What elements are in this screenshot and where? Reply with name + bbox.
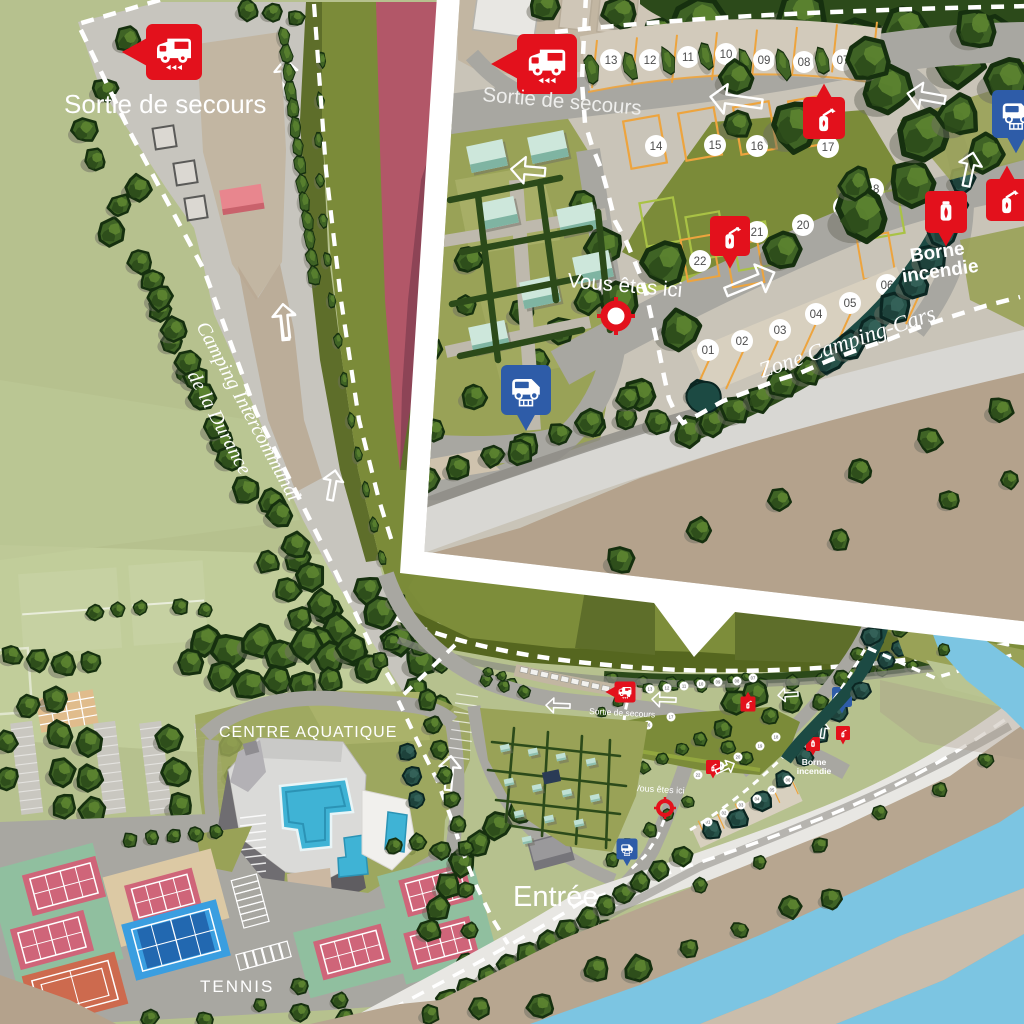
svg-text:06: 06	[786, 778, 791, 783]
svg-text:07: 07	[751, 676, 756, 681]
svg-text:05: 05	[770, 788, 775, 793]
svg-text:13: 13	[648, 687, 653, 692]
svg-text:17: 17	[822, 142, 835, 154]
svg-text:03: 03	[774, 325, 787, 337]
svg-text:TENNIS: TENNIS	[200, 977, 274, 996]
svg-text:14: 14	[650, 141, 663, 153]
svg-text:02: 02	[722, 811, 727, 816]
svg-text:20: 20	[736, 755, 741, 760]
svg-text:03: 03	[739, 803, 744, 808]
svg-text:CENTRE AQUATIQUE: CENTRE AQUATIQUE	[219, 724, 397, 741]
svg-text:17: 17	[669, 715, 674, 720]
svg-text:10: 10	[699, 682, 704, 687]
svg-text:22: 22	[694, 256, 707, 268]
svg-text:Sortie de secours: Sortie de secours	[64, 89, 266, 119]
svg-text:09: 09	[758, 55, 771, 67]
svg-text:12: 12	[665, 686, 670, 691]
svg-text:05: 05	[844, 298, 857, 310]
svg-text:20: 20	[797, 220, 810, 232]
svg-text:10: 10	[720, 49, 733, 61]
svg-text:09: 09	[716, 680, 721, 685]
svg-text:16: 16	[751, 141, 764, 153]
svg-text:12: 12	[644, 55, 657, 67]
svg-text:08: 08	[735, 679, 740, 684]
svg-text:01: 01	[702, 345, 715, 357]
svg-text:11: 11	[682, 684, 687, 689]
svg-text:04: 04	[755, 797, 760, 802]
svg-text:21: 21	[751, 227, 764, 239]
svg-text:incendie: incendie	[797, 766, 832, 776]
svg-text:Entrée: Entrée	[513, 881, 598, 913]
svg-text:13: 13	[605, 55, 618, 67]
svg-text:19: 19	[758, 744, 763, 749]
svg-text:08: 08	[798, 57, 811, 69]
svg-text:22: 22	[696, 773, 701, 778]
svg-text:18: 18	[774, 735, 779, 740]
svg-text:15: 15	[709, 140, 722, 152]
svg-text:02: 02	[736, 336, 749, 348]
svg-text:11: 11	[682, 52, 694, 64]
svg-text:04: 04	[810, 309, 823, 321]
